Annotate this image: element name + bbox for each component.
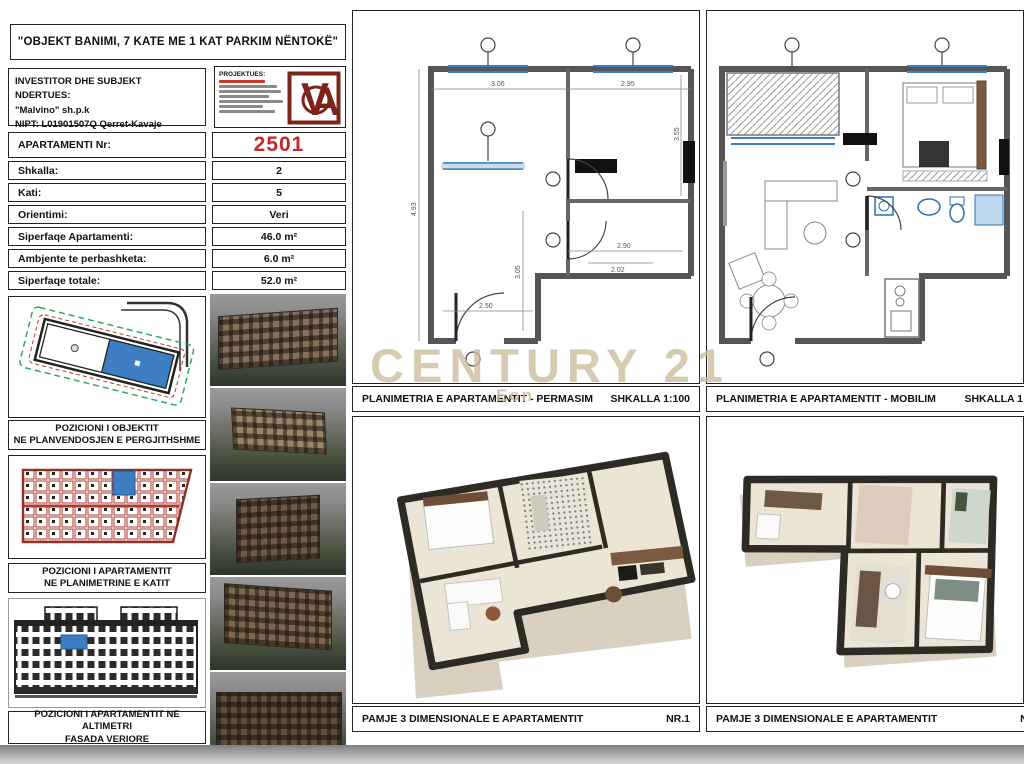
plan-dimensioned-titlebar: PLANIMETRIA E APARTAMENTIT - PERMASIM SH… xyxy=(352,386,700,412)
building-render-photo xyxy=(210,388,346,480)
table-row: Ambjente te perbashketa: 6.0 m² xyxy=(8,249,346,268)
panel-scale: SHKALLA 1:100 xyxy=(610,393,690,405)
panel-number: NR.2 xyxy=(1020,713,1024,725)
building-render-photo xyxy=(210,577,346,669)
key-plan-drawing xyxy=(9,456,204,556)
svg-text:2.02: 2.02 xyxy=(611,267,625,274)
apartment-number: 2501 xyxy=(212,132,346,158)
facade-drawing xyxy=(9,599,204,705)
table-row: APARTAMENTI Nr: 2501 xyxy=(8,132,346,158)
view3d-1-titlebar: PAMJE 3 DIMENSIONALE E APARTAMENTIT NR.1 xyxy=(352,706,700,732)
plan-dimensioned-drawing: 3.06 2.95 3.55 2.90 2.02 2.50 3.05 4.93 xyxy=(353,11,698,381)
investor-line2: "Malvino" sh.p.k xyxy=(15,104,199,118)
apartment-table: APARTAMENTI Nr: 2501 Shkalla: 2 Kati: 5 … xyxy=(8,132,346,293)
site-plan-drawing xyxy=(9,297,204,415)
investor-line1: INVESTITOR DHE SUBJEKT NDERTUES: xyxy=(15,75,199,104)
designer-name-line xyxy=(219,80,265,83)
row-label: Kati: xyxy=(8,183,206,202)
svg-text:2.50: 2.50 xyxy=(479,303,493,310)
table-row: Siperfaqe Apartamenti: 46.0 m² xyxy=(8,227,346,246)
facade-figure xyxy=(8,598,206,708)
building-render-photo xyxy=(210,294,346,386)
row-value: 5 xyxy=(212,183,346,202)
facade-caption: POZICIONI I APARTAMENTIT NE ALTIMETRI FA… xyxy=(8,711,206,744)
plan-furnished-drawing xyxy=(707,11,1022,381)
svg-text:4.93: 4.93 xyxy=(411,202,418,216)
row-value: 46.0 m² xyxy=(212,227,346,246)
designer-box: PROJEKTUES: V A xyxy=(214,66,346,128)
investor-box: INVESTITOR DHE SUBJEKT NDERTUES: "Malvin… xyxy=(8,68,206,126)
svg-text:3.05: 3.05 xyxy=(515,265,522,279)
table-row: Shkalla: 2 xyxy=(8,161,346,180)
plan-furnished-titlebar: PLANIMETRIA E APARTAMENTIT - MOBILIM SHK… xyxy=(706,386,1024,412)
view3d-2-drawing xyxy=(707,417,1022,701)
key-plan-figure xyxy=(8,455,206,559)
building-render-photo xyxy=(210,483,346,575)
svg-text:2.95: 2.95 xyxy=(621,81,635,88)
designer-label: PROJEKTUES: xyxy=(219,71,283,78)
svg-text:3.55: 3.55 xyxy=(674,127,681,141)
plan-furnished-panel xyxy=(706,10,1024,384)
investor-line3: NIPT: L01901507Q Qerret-Kavaje xyxy=(15,118,199,132)
site-plan-caption: POZICIONI I OBJEKTIT NE PLANVENDOSJEN E … xyxy=(8,420,206,450)
row-label: Shkalla: xyxy=(8,161,206,180)
row-value: Veri xyxy=(212,205,346,224)
va-logo: V A xyxy=(287,71,341,125)
designer-info: PROJEKTUES: xyxy=(219,71,287,123)
scan-edge-band xyxy=(0,745,1024,764)
svg-text:3.06: 3.06 xyxy=(491,81,505,88)
row-label: Orientimi: xyxy=(8,205,206,224)
row-value: 52.0 m² xyxy=(212,271,346,290)
panel-title: PLANIMETRIA E APARTAMENTIT - MOBILIM xyxy=(716,393,936,405)
row-value: 6.0 m² xyxy=(212,249,346,268)
table-row: Siperfaqe totale: 52.0 m² xyxy=(8,271,346,290)
row-label: Siperfaqe totale: xyxy=(8,271,206,290)
panel-title: PAMJE 3 DIMENSIONALE E APARTAMENTIT xyxy=(362,713,583,725)
sheet-title-text: "OBJEKT BANIMI, 7 KATE ME 1 KAT PARKIM N… xyxy=(18,36,338,48)
site-plan-figure xyxy=(8,296,206,418)
row-label: APARTAMENTI Nr: xyxy=(8,132,206,158)
panel-title: PAMJE 3 DIMENSIONALE E APARTAMENTIT xyxy=(716,713,937,725)
plan-dimensioned-panel: 3.06 2.95 3.55 2.90 2.02 2.50 3.05 4.93 xyxy=(352,10,700,384)
view3d-2-titlebar: PAMJE 3 DIMENSIONALE E APARTAMENTIT NR.2 xyxy=(706,706,1024,732)
panel-title: PLANIMETRIA E APARTAMENTIT - PERMASIM xyxy=(362,393,593,405)
key-plan-caption: POZICIONI I APARTAMENTIT NE PLANIMETRINE… xyxy=(8,563,206,593)
table-row: Orientimi: Veri xyxy=(8,205,346,224)
panel-number: NR.1 xyxy=(666,713,690,725)
row-label: Siperfaqe Apartamenti: xyxy=(8,227,206,246)
row-value: 2 xyxy=(212,161,346,180)
view3d-1-drawing xyxy=(353,417,698,701)
svg-text:2.90: 2.90 xyxy=(617,243,631,250)
table-row: Kati: 5 xyxy=(8,183,346,202)
panel-scale: SHKALLA 1:100 xyxy=(964,393,1024,405)
view3d-1-panel xyxy=(352,416,700,704)
sheet-title: "OBJEKT BANIMI, 7 KATE ME 1 KAT PARKIM N… xyxy=(10,24,346,60)
row-label: Ambjente te perbashketa: xyxy=(8,249,206,268)
view3d-2-panel xyxy=(706,416,1024,704)
drawing-sheet: "OBJEKT BANIMI, 7 KATE ME 1 KAT PARKIM N… xyxy=(0,0,1024,764)
building-photo-strip xyxy=(210,294,346,764)
